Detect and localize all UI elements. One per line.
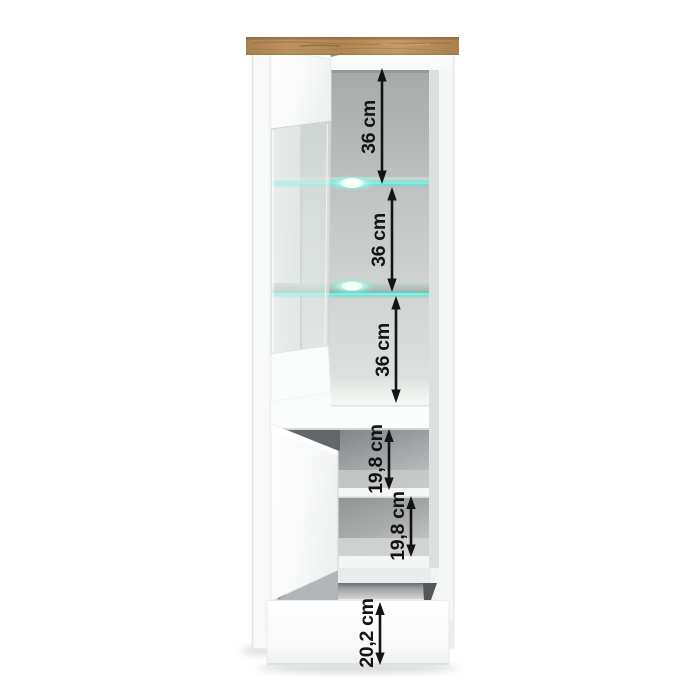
led-spot-core-2 xyxy=(342,282,362,291)
right-inner-wall xyxy=(429,70,439,568)
dimension-label-5: 19,8 cm xyxy=(387,491,409,560)
glass-door-open xyxy=(271,48,339,424)
oak-bottom-edge xyxy=(246,54,459,56)
dimension-label-4: 19,8 cm xyxy=(365,424,387,493)
glass-door-pane xyxy=(271,121,331,354)
dimension-arrow-4: 19,8 cm xyxy=(365,424,394,493)
dimension-label-3: 36 cm xyxy=(372,323,394,377)
dimension-label-1: 36 cm xyxy=(358,100,380,154)
dimension-label-2: 36 cm xyxy=(368,213,390,267)
right-frame xyxy=(439,54,454,620)
led-spot-core-1 xyxy=(341,178,363,188)
lower-door-open xyxy=(271,424,338,601)
dimension-arrow-5: 19,8 cm xyxy=(387,491,416,560)
left-side-panel xyxy=(252,54,271,648)
dimension-arrow-6: 20,2 cm xyxy=(356,598,385,667)
oak-top-board xyxy=(246,37,459,55)
divider-bottom-edge xyxy=(271,428,429,430)
dimension-label-6: 20,2 cm xyxy=(356,598,378,667)
oak-top-edge xyxy=(246,37,459,40)
glass-door-top-panel xyxy=(271,50,331,129)
oak-top-face xyxy=(246,37,459,55)
product-image-canvas: 36 cm 36 cm 36 cm 19,8 cm 19,8 c xyxy=(0,0,700,700)
wood-grain-knot xyxy=(300,45,340,46)
cabinet-dimension-drawing: 36 cm 36 cm 36 cm 19,8 cm 19,8 c xyxy=(0,0,700,700)
